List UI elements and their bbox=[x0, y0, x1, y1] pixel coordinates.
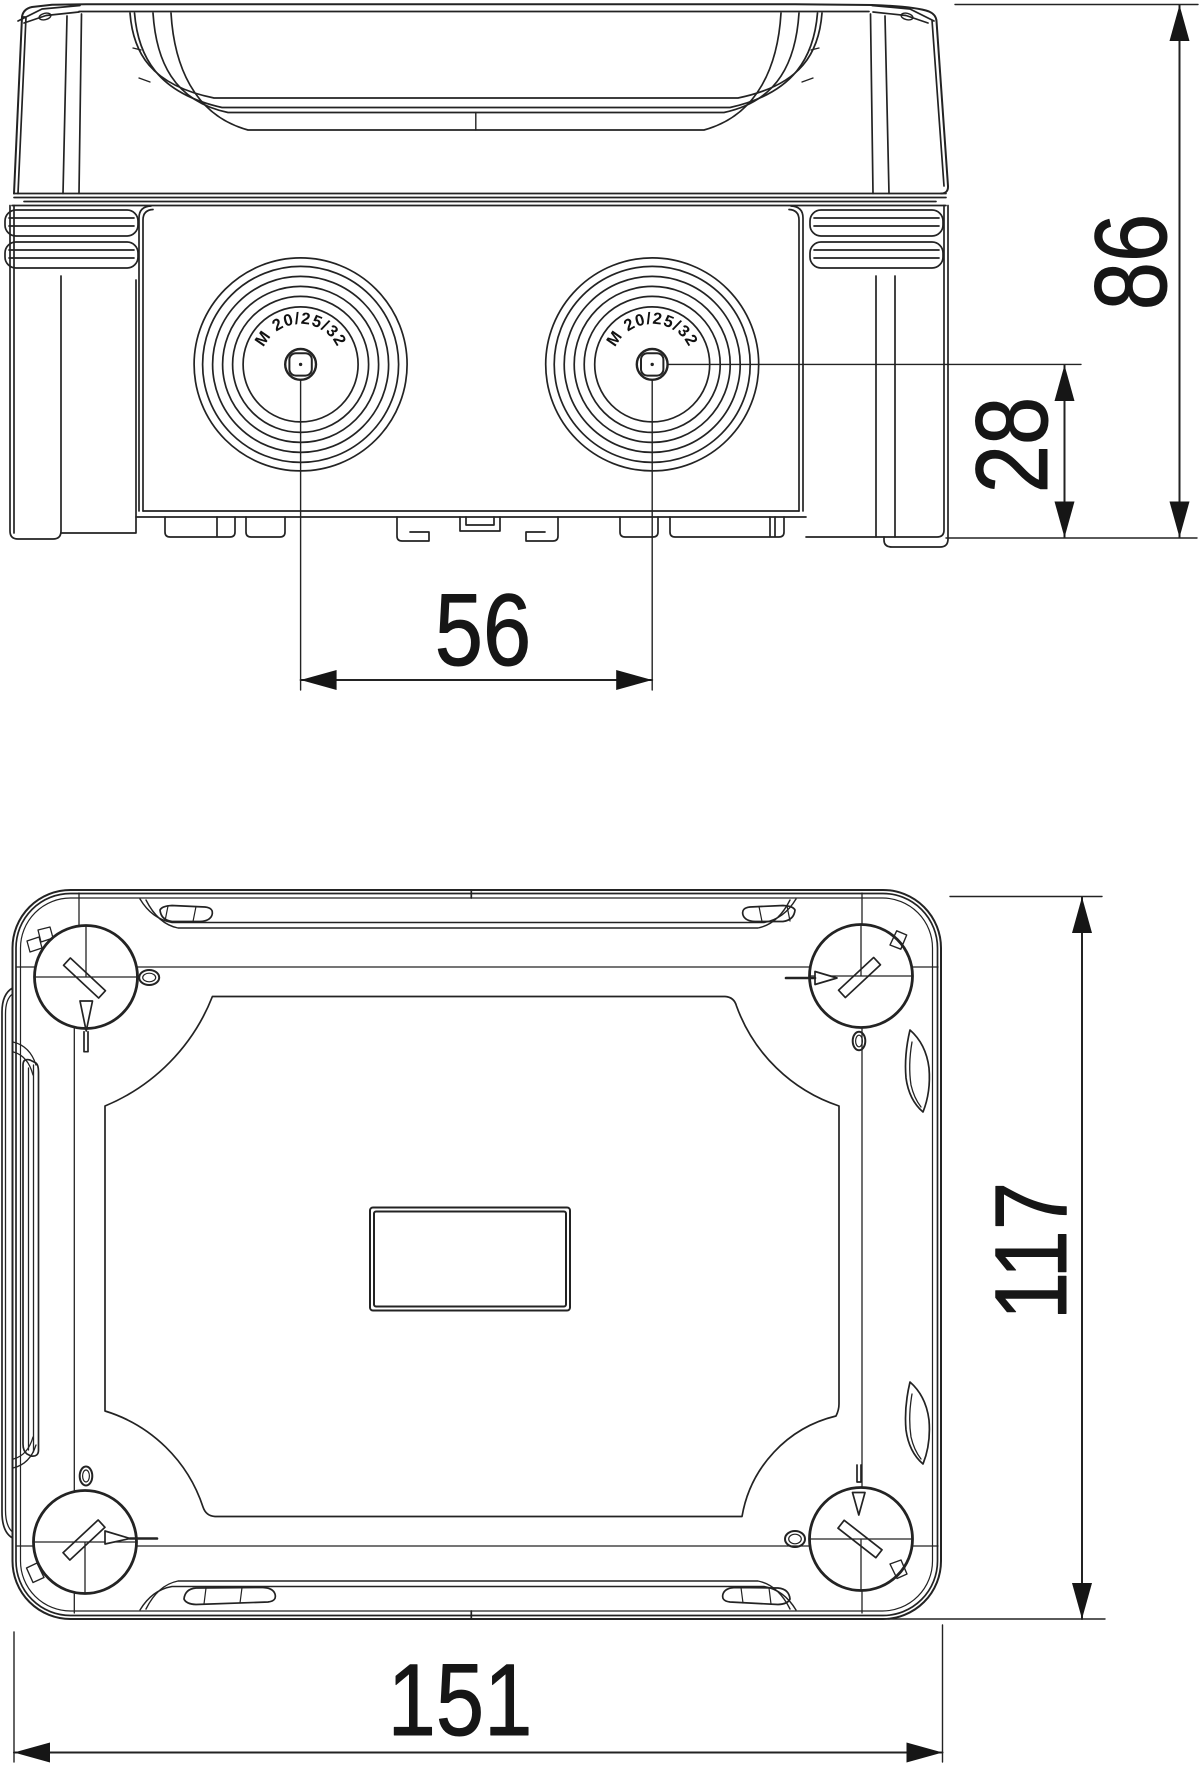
svg-text:28: 28 bbox=[955, 397, 1069, 493]
svg-text:86: 86 bbox=[1074, 214, 1188, 310]
svg-text:117: 117 bbox=[974, 1182, 1088, 1320]
svg-text:151: 151 bbox=[388, 1643, 533, 1757]
svg-text:56: 56 bbox=[435, 573, 531, 687]
